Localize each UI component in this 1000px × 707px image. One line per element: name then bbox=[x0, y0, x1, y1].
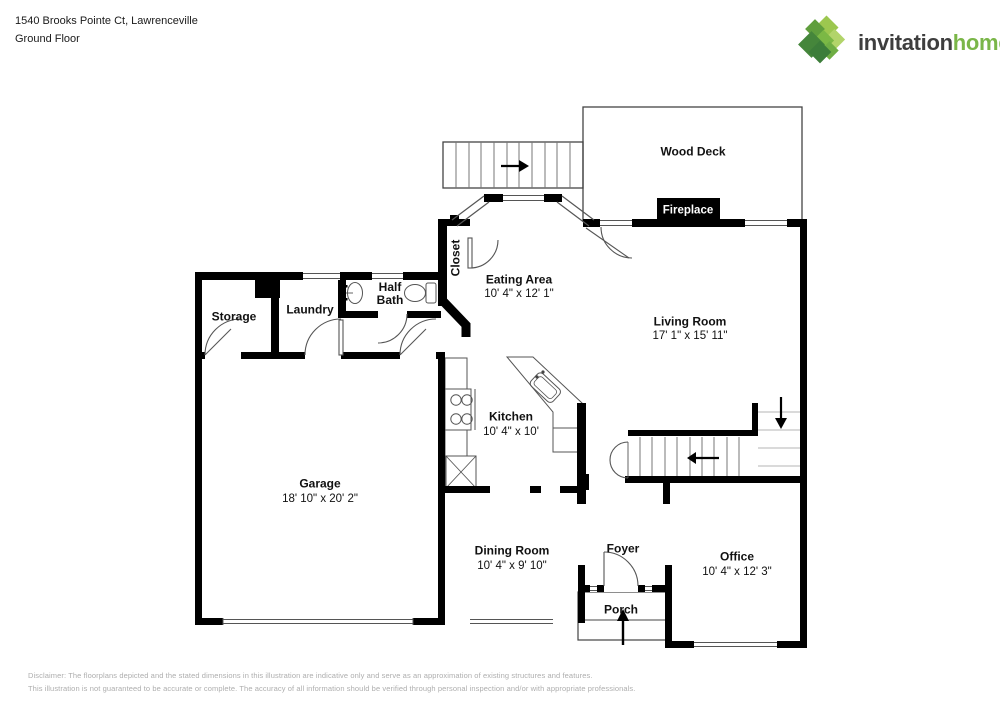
stairs-down-arrow-icon bbox=[775, 397, 787, 429]
interior-stairs bbox=[640, 397, 800, 476]
room-label-fireplace: Fireplace bbox=[663, 205, 714, 218]
room-label-wood-deck: Wood Deck bbox=[660, 146, 725, 159]
room-label-garage: Garage bbox=[299, 478, 340, 491]
toilet-icon bbox=[405, 283, 437, 303]
room-label-dining-room: Dining Room bbox=[475, 545, 550, 558]
disclaimer-line-1: Disclaimer: The floorplans depicted and … bbox=[28, 671, 593, 680]
refrigerator-icon bbox=[446, 456, 476, 488]
bath-sink-icon bbox=[345, 283, 363, 304]
room-label-office: Office bbox=[720, 551, 754, 564]
exterior-stairs bbox=[443, 142, 583, 188]
room-dims-dining-room: 10' 4" x 9' 10" bbox=[477, 560, 546, 572]
room-label-storage: Storage bbox=[212, 311, 257, 324]
garage-door bbox=[223, 618, 413, 625]
kitchen-fixtures bbox=[445, 357, 582, 490]
room-dims-living-room: 17' 1" x 15' 11" bbox=[652, 330, 727, 342]
room-label-eating-area: Eating Area bbox=[486, 274, 552, 287]
room-label-laundry: Laundry bbox=[286, 304, 333, 317]
room-dims-kitchen: 10' 4" x 10' bbox=[483, 426, 539, 438]
stairs-right-arrow-icon bbox=[501, 160, 529, 172]
room-label-half-bath: Half Bath bbox=[377, 281, 404, 307]
room-label-living-room: Living Room bbox=[654, 316, 727, 329]
porch-outline bbox=[578, 592, 668, 645]
room-dims-eating-area: 10' 4" x 12' 1" bbox=[484, 288, 553, 300]
room-dims-garage: 18' 10" x 20' 2" bbox=[282, 493, 358, 505]
stove-icon bbox=[445, 389, 475, 430]
room-label-closet: Closet bbox=[450, 240, 463, 277]
disclaimer-line-2: This illustration is not guaranteed to b… bbox=[28, 684, 635, 693]
room-label-porch: Porch bbox=[604, 604, 638, 617]
room-dims-office: 10' 4" x 12' 3" bbox=[702, 566, 771, 578]
room-label-foyer: Foyer bbox=[607, 543, 640, 556]
floorplan-drawing bbox=[0, 0, 1000, 707]
room-label-kitchen: Kitchen bbox=[489, 411, 533, 424]
